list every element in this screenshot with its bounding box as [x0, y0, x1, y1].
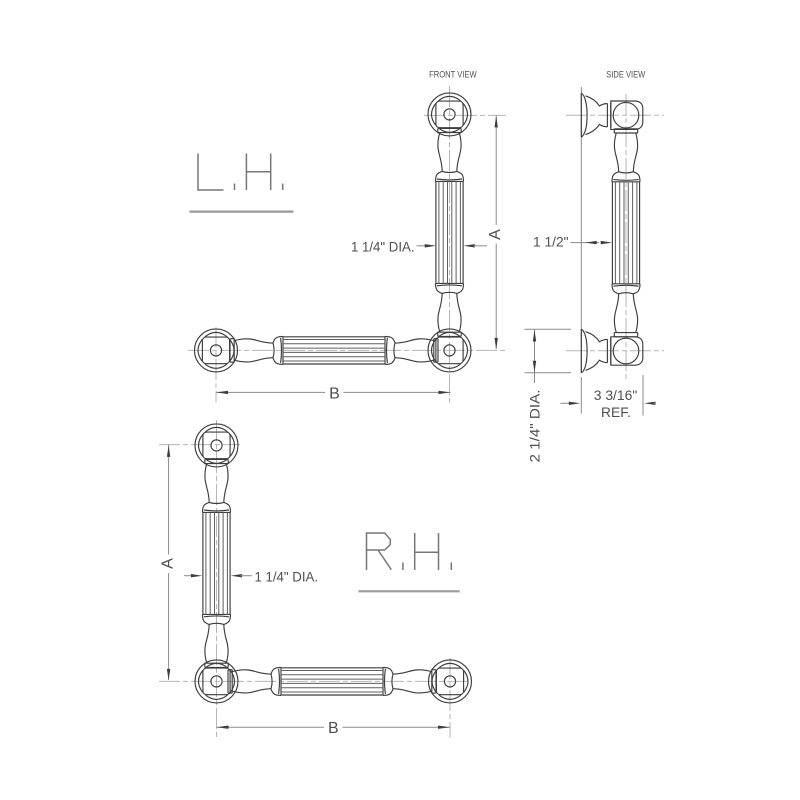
svg-text:2 1/4" DIA.: 2 1/4" DIA.: [527, 390, 543, 463]
svg-text:1 1/2": 1 1/2": [533, 233, 569, 249]
svg-text:FRONT VIEW: FRONT VIEW: [429, 69, 477, 79]
svg-text:B: B: [329, 385, 340, 402]
svg-text:A: A: [487, 229, 504, 240]
svg-text:1 1/4" DIA.: 1 1/4" DIA.: [351, 238, 415, 254]
svg-text:1 1/4" DIA.: 1 1/4" DIA.: [255, 568, 319, 584]
svg-text:B: B: [328, 720, 339, 737]
svg-text:REF.: REF.: [601, 405, 631, 420]
svg-text:3 3/16": 3 3/16": [594, 388, 638, 403]
svg-text:A: A: [159, 558, 176, 569]
svg-text:SIDE VIEW: SIDE VIEW: [606, 69, 645, 79]
